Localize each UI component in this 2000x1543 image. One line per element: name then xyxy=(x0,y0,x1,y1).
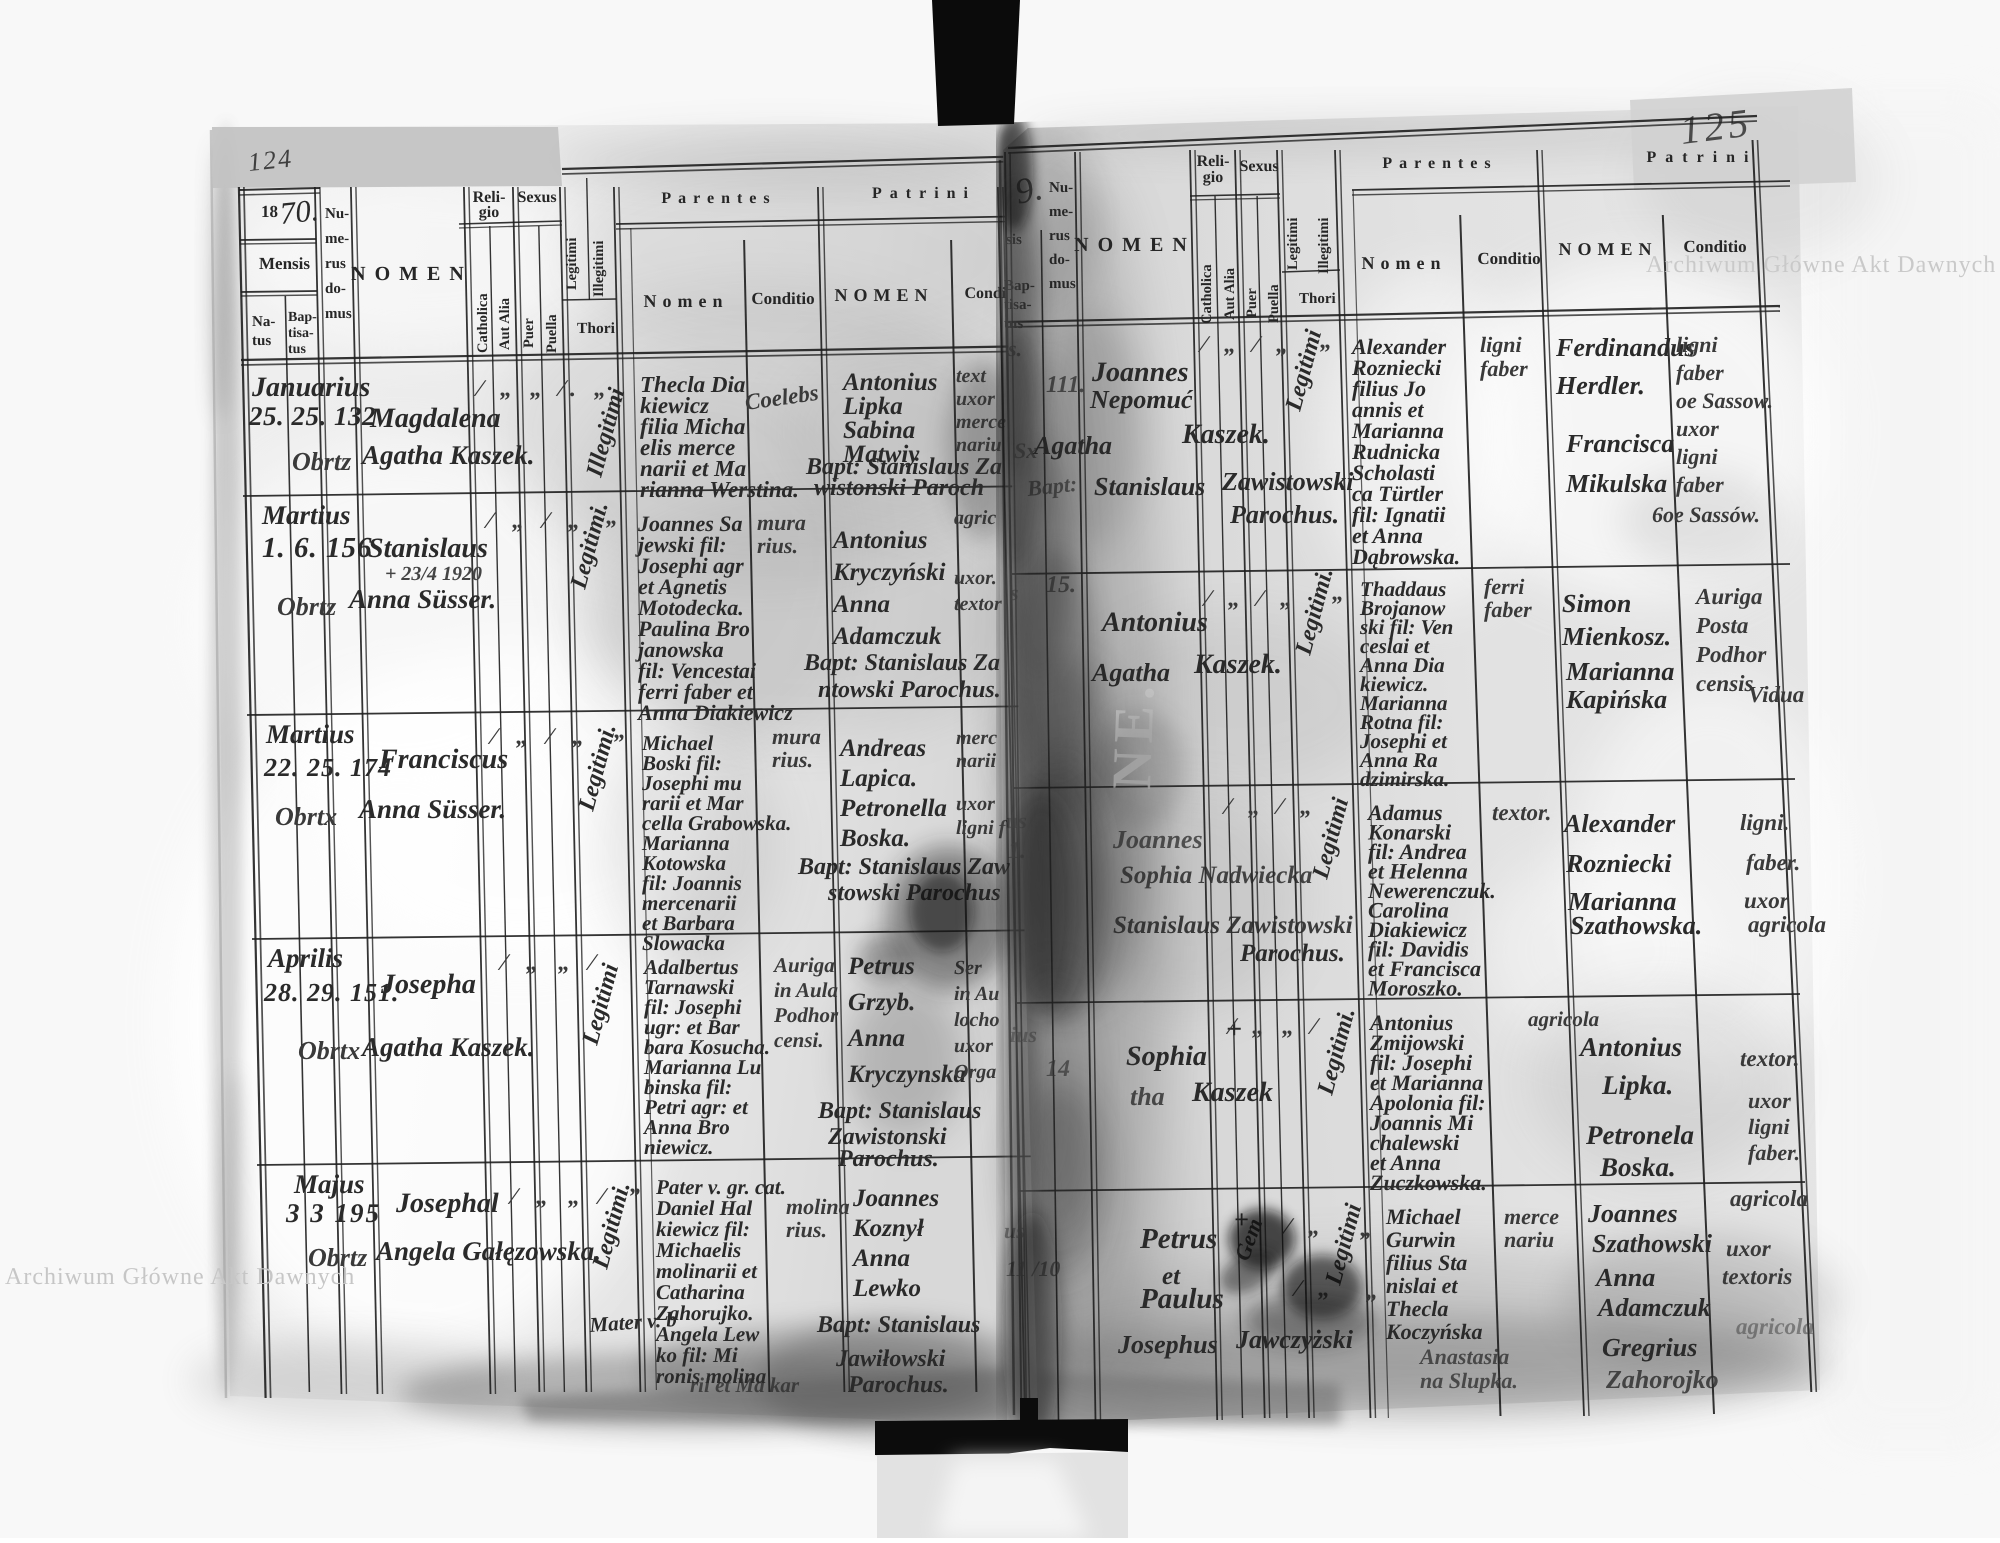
svg-text:Bapt: Stanislaus Za: Bapt: Stanislaus Za xyxy=(803,650,1000,676)
svg-text:Martius: Martius xyxy=(265,719,355,749)
svg-text:Anna: Anna xyxy=(1594,1263,1655,1292)
svg-text:Illegitimi: Illegitimi xyxy=(1316,218,1332,274)
svg-text:rii et Ma kar: rii et Ma kar xyxy=(690,1373,800,1397)
svg-text:25. 25. 132: 25. 25. 132 xyxy=(248,401,376,431)
svg-text:Sexus: Sexus xyxy=(1239,158,1278,175)
svg-text:Patrini: Patrini xyxy=(872,185,976,202)
svg-text:Archiwum Główne Akt Dawnych: Archiwum Główne Akt Dawnych xyxy=(5,1264,355,1290)
svg-text:Nomen: Nomen xyxy=(1362,253,1447,273)
svg-text:Stanislaus: Stanislaus xyxy=(368,533,488,564)
svg-text:Mensis: Mensis xyxy=(259,254,310,273)
svg-text:Majus: Majus xyxy=(293,1169,365,1199)
svg-text:Kaszek.: Kaszek. xyxy=(1193,649,1282,680)
svg-text:agricola: agricola xyxy=(1730,1186,1808,1211)
svg-text:Kaszek: Kaszek xyxy=(1191,1077,1273,1108)
svg-text:textoris: textoris xyxy=(1722,1264,1792,1289)
svg-text:Boska.: Boska. xyxy=(1599,1152,1676,1182)
svg-text:28. 29. 151.: 28. 29. 151. xyxy=(263,978,400,1007)
svg-text:NOMEN: NOMEN xyxy=(351,263,473,285)
svg-text:Archiwum Główne Akt Dawnych: Archiwum Główne Akt Dawnych xyxy=(1646,252,1996,278)
svg-text:Conditio: Conditio xyxy=(1477,249,1540,268)
svg-text:ntowski Parochus.: ntowski Parochus. xyxy=(818,677,1001,703)
svg-text:Nepomuć: Nepomuć xyxy=(1089,385,1194,414)
svg-text:Obrtz: Obrtz xyxy=(277,592,337,621)
svg-text:Puella: Puella xyxy=(544,314,560,353)
svg-text:tha: tha xyxy=(1130,1082,1165,1111)
svg-text:Puella: Puella xyxy=(1266,284,1282,323)
svg-text:Jawiłowski: Jawiłowski xyxy=(835,1346,946,1372)
svg-text:Parentes: Parentes xyxy=(1382,155,1497,172)
svg-text:Parochus.: Parochus. xyxy=(847,1372,949,1398)
svg-text:Joannes: Joannes xyxy=(1587,1199,1678,1228)
svg-text:Angela Gałęzowska.: Angela Gałęzowska. xyxy=(374,1236,601,1266)
svg-text:lignifaber: lignifaber xyxy=(1480,332,1528,381)
svg-text:textor.: textor. xyxy=(1740,1046,1799,1071)
svg-text:∕ „ „ ∕: ∕ „ „ ∕ xyxy=(507,1184,611,1210)
svg-text:Obrtx: Obrtx xyxy=(298,1036,360,1065)
svg-text:Obrtz: Obrtz xyxy=(292,447,352,476)
svg-text:Parochus.: Parochus. xyxy=(837,1146,939,1172)
svg-text:Catholica: Catholica xyxy=(1199,264,1215,324)
svg-text:Parentes: Parentes xyxy=(661,190,776,207)
svg-text:Gregrius: Gregrius xyxy=(1602,1333,1697,1362)
svg-text:Antonius: Antonius xyxy=(1578,1032,1682,1062)
svg-text:Petrus: Petrus xyxy=(1139,1223,1217,1255)
svg-text:6oe Sassów.: 6oe Sassów. xyxy=(1652,502,1760,527)
svg-text:mercnarii: mercnarii xyxy=(956,727,997,772)
svg-text:Rozniecki: Rozniecki xyxy=(1565,849,1672,878)
svg-text:Puer: Puer xyxy=(1244,288,1260,318)
svg-text:Sophia: Sophia xyxy=(1126,1041,1207,1072)
svg-text:„: „ xyxy=(1332,580,1344,606)
svg-text:Sexus: Sexus xyxy=(517,189,556,206)
svg-text:∕ „ „ ∕: ∕ „ „ ∕ xyxy=(497,950,601,976)
svg-text:124: 124 xyxy=(247,143,295,177)
svg-text:+ 23/4 1920: + 23/4 1920 xyxy=(385,563,482,585)
svg-text:Antonius: Antonius xyxy=(1100,607,1208,638)
svg-text:mercenariu: mercenariu xyxy=(1504,1204,1559,1252)
svg-text:∕ „ „ ∕: ∕ „ „ ∕ xyxy=(1225,1014,1322,1040)
svg-text:Joannes: Joannes xyxy=(1091,357,1189,388)
svg-text:Joannes: Joannes xyxy=(1112,825,1203,854)
svg-text:Szathowska.: Szathowska. xyxy=(1570,911,1702,940)
svg-text:NOMEN: NOMEN xyxy=(835,285,934,305)
svg-text:18: 18 xyxy=(261,202,278,221)
svg-text:uxor: uxor xyxy=(1744,888,1790,913)
svg-text:Zawistowski: Zawistowski xyxy=(1221,467,1354,496)
svg-text:Paulus: Paulus xyxy=(1139,1283,1224,1315)
svg-text:textor.: textor. xyxy=(1492,800,1551,825)
svg-text:Bapt: Stanislaus: Bapt: Stanislaus xyxy=(816,1312,980,1338)
svg-text:Thori: Thori xyxy=(577,320,616,337)
svg-text:Petronela: Petronela xyxy=(1585,1120,1694,1150)
svg-text:Parochus.: Parochus. xyxy=(1229,500,1339,529)
svg-text:Obrtx: Obrtx xyxy=(275,802,337,831)
svg-text:Thori: Thori xyxy=(1299,291,1336,307)
svg-text:ligni.: ligni. xyxy=(1740,810,1789,835)
svg-text:„: „ xyxy=(1360,1216,1372,1242)
svg-text:Anna Süsser.: Anna Süsser. xyxy=(357,794,506,824)
svg-text:∕ „ „ ∕. „: ∕ „ „ ∕. „ xyxy=(473,376,612,402)
svg-text:Kaszek.: Kaszek. xyxy=(1181,419,1270,450)
svg-text:Franciscus: Franciscus xyxy=(378,744,508,775)
svg-text:Illegitimi: Illegitimi xyxy=(591,241,607,297)
svg-text:NOMEN: NOMEN xyxy=(1559,239,1658,259)
svg-text:70.: 70. xyxy=(278,192,320,231)
svg-text:Legitimi: Legitimi xyxy=(564,238,580,290)
svg-text:„: „ xyxy=(1366,1278,1378,1304)
svg-text:Szathowski: Szathowski xyxy=(1592,1229,1713,1258)
svg-text:agricola: agricola xyxy=(1748,912,1826,937)
svg-text:Anastasiana Slupka.: Anastasiana Slupka. xyxy=(1418,1344,1518,1393)
svg-text:Aprilis: Aprilis xyxy=(266,943,343,973)
svg-text:Sophia Nadwiecka: Sophia Nadwiecka xyxy=(1120,862,1312,889)
svg-text:faber.: faber. xyxy=(1746,850,1800,875)
svg-text:„: „ xyxy=(606,504,618,530)
svg-text:Stanislaus: Stanislaus xyxy=(1094,472,1205,501)
svg-text:Vidua: Vidua xyxy=(1748,682,1804,707)
svg-text:Zahorojko: Zahorojko xyxy=(1605,1365,1719,1394)
svg-text:∕ „ ∕ „: ∕ „ ∕ „ xyxy=(1221,794,1318,820)
svg-text:Lipka.: Lipka. xyxy=(1601,1070,1673,1100)
svg-text:Anna Süsser.: Anna Süsser. xyxy=(347,584,496,614)
svg-text:∕ „ ∕ „: ∕ „ ∕ „ xyxy=(483,508,587,534)
svg-text:„: „ xyxy=(630,1172,642,1198)
svg-text:Legitimi: Legitimi xyxy=(1285,218,1301,270)
svg-text:MariannaKapińska: MariannaKapińska xyxy=(1565,657,1674,714)
svg-text:Parochus.: Parochus. xyxy=(1239,940,1345,967)
svg-text:3 3 195: 3 3 195 xyxy=(285,1198,381,1228)
svg-text:„: „ xyxy=(614,718,626,744)
svg-text:„: „ xyxy=(1320,328,1332,354)
svg-text:Josephal: Josephal xyxy=(395,1188,499,1219)
svg-text:Stanislaus Zawistowski: Stanislaus Zawistowski xyxy=(1113,912,1353,939)
svg-text:∕ „ ∕ „: ∕ „ ∕ „ xyxy=(1201,586,1298,612)
svg-text:Magdalena: Magdalena xyxy=(369,403,501,434)
svg-text:Januarius: Januarius xyxy=(251,372,370,403)
svg-text:Puer: Puer xyxy=(521,318,537,348)
svg-text:22. 25. 174: 22. 25. 174 xyxy=(263,753,392,782)
svg-text:Aut Alia: Aut Alia xyxy=(1222,267,1238,320)
svg-text:agricola: agricola xyxy=(1736,1314,1814,1339)
svg-text:∕ „ ∕ „: ∕ „ ∕ „ xyxy=(487,724,591,750)
svg-text:Josepha: Josepha xyxy=(380,969,476,1000)
svg-text:agricola: agricola xyxy=(1528,1007,1599,1031)
svg-text:Nomen: Nomen xyxy=(644,291,729,311)
svg-text:Conditio: Conditio xyxy=(751,289,814,308)
svg-text:∕ „ ∕ „: ∕ „ ∕ „ xyxy=(1197,332,1294,358)
svg-text:Agatha Kaszek.: Agatha Kaszek. xyxy=(360,1032,535,1062)
svg-text:Alexander: Alexander xyxy=(1562,809,1676,838)
svg-text:Josephus: Josephus xyxy=(1117,1330,1218,1359)
svg-text:Patrini: Patrini xyxy=(1647,149,1758,166)
svg-text:Martius: Martius xyxy=(261,500,351,530)
svg-text:uxor: uxor xyxy=(1726,1236,1772,1261)
svg-text:1. 6. 156: 1. 6. 156 xyxy=(262,532,373,564)
svg-text:Adamczuk: Adamczuk xyxy=(1596,1293,1711,1322)
svg-text:Agatha Kaszek.: Agatha Kaszek. xyxy=(360,440,535,470)
svg-text:Catholica: Catholica xyxy=(475,293,491,353)
svg-text:Aut Alia: Aut Alia xyxy=(497,297,513,350)
svg-text:125: 125 xyxy=(1678,99,1755,152)
